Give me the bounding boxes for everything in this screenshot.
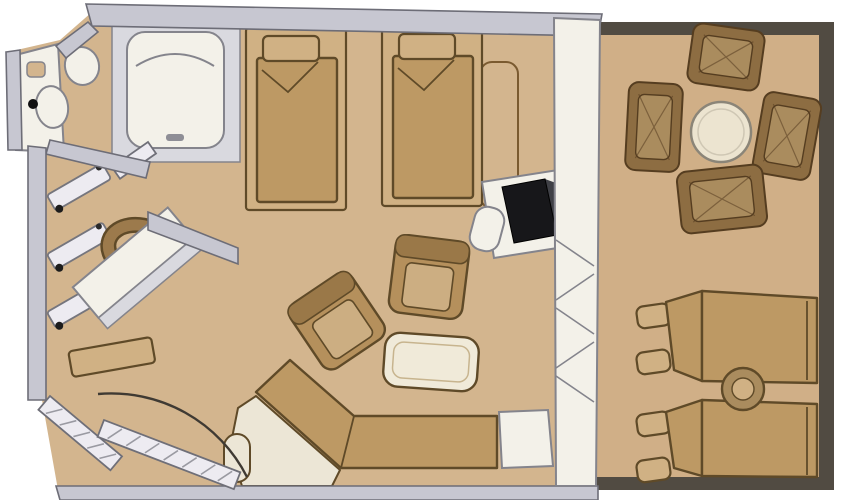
round-dining-table-icon [691,102,751,162]
balcony-wall-right [819,22,834,490]
balcony-wall-bottom [596,477,834,490]
bed-1-pillow [263,36,319,61]
tub-drain [166,134,184,141]
floor-plan: Suite stateroom floor plan with private … [0,0,841,500]
sofa-side-table [499,410,553,468]
twin-bed-2-icon [382,26,482,206]
wicker-chair-top-icon [686,22,766,91]
bathtub-icon [112,18,240,162]
lounger-2-body [702,400,817,477]
bottom-wall [56,486,598,500]
bathroom-outer-wall [6,50,22,150]
balcony-divider-wall [554,18,600,486]
wicker-chair-bottom-icon [676,164,768,235]
coffee-table-icon [382,332,480,392]
wicker-chair-left-icon [625,82,684,173]
bed-2-pillow [399,34,455,59]
left-wall [28,146,46,400]
toilet-flush-dot [28,99,38,109]
counter-tray [27,62,45,77]
twin-bed-1-icon [246,28,346,210]
drum-side-table-icon [722,368,764,410]
armchair-2-icon [388,234,471,320]
lounger-1-body [702,291,817,383]
